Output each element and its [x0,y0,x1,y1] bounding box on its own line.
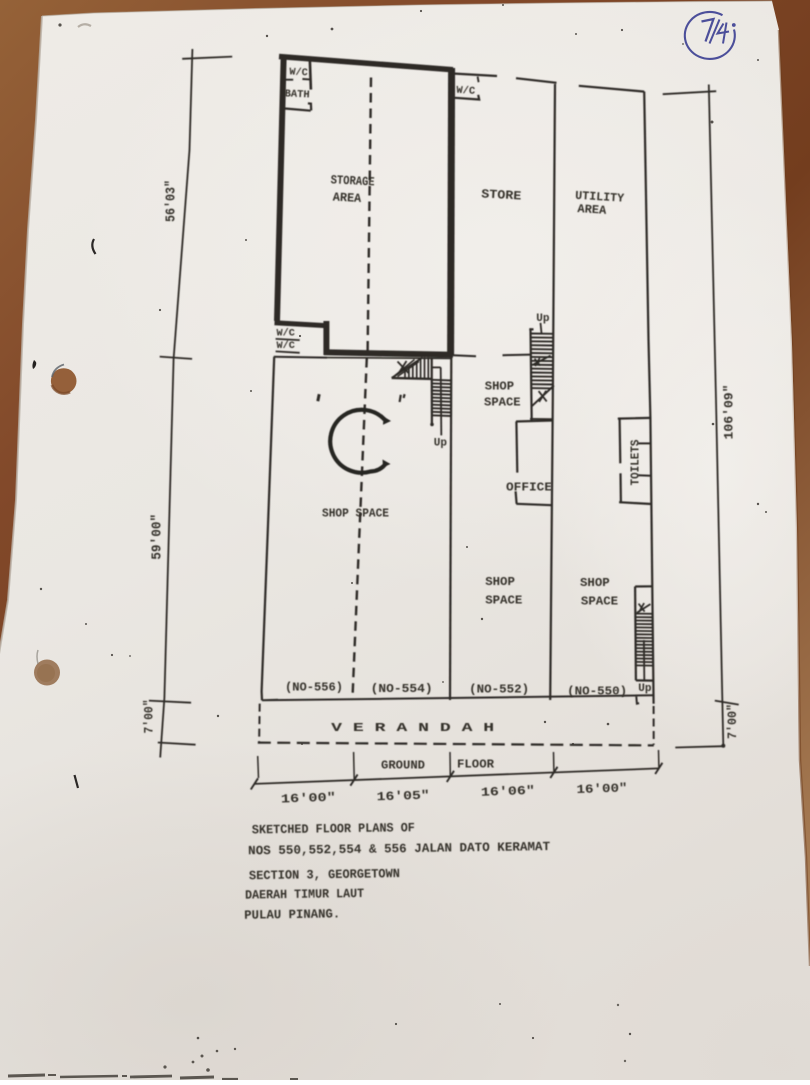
svg-text:OFFICE: OFFICE [506,481,552,495]
svg-text:59'00": 59'00" [150,514,165,560]
svg-text:(NO-556): (NO-556) [285,680,343,694]
svg-text:BATH: BATH [284,88,310,101]
svg-text:(NO-554): (NO-554) [371,682,433,696]
svg-text:Up: Up [536,313,550,325]
svg-text:TOILETS: TOILETS [630,439,643,485]
svg-text:SECTION 3, GEORGETOWN: SECTION 3, GEORGETOWN [249,867,400,883]
svg-text:W/C: W/C [456,85,475,98]
svg-text:STORAGE: STORAGE [330,173,375,189]
svg-text:(NO-550): (NO-550) [567,684,627,698]
svg-text:SHOP SPACE: SHOP SPACE [322,507,389,521]
svg-text:PULAU PINANG.: PULAU PINANG. [244,907,340,922]
svg-text:SHOP: SHOP [485,575,515,589]
svg-text:W/C: W/C [277,340,295,352]
svg-text:W/C: W/C [289,66,308,79]
svg-text:(NO-552): (NO-552) [469,683,529,697]
svg-text:SPACE: SPACE [485,594,522,608]
svg-text:SHOP: SHOP [485,379,514,393]
svg-text:V E R A N D A H: V E R A N D A H [331,721,494,735]
svg-text:AREA: AREA [577,202,607,218]
svg-text:7'00": 7'00" [142,700,156,734]
svg-text:AREA: AREA [332,191,362,207]
svg-text:Up: Up [434,437,448,449]
svg-text:56'03": 56'03" [165,180,180,222]
svg-text:W/C: W/C [277,327,295,339]
svg-text:106'09": 106'09" [722,385,737,440]
svg-text:SPACE: SPACE [484,395,521,409]
svg-text:16'00": 16'00" [281,791,336,807]
svg-text:SHOP: SHOP [580,576,610,590]
svg-text:DAERAH TIMUR LAUT: DAERAH TIMUR LAUT [245,887,365,903]
svg-text:STORE: STORE [481,187,522,203]
svg-text:GROUND: GROUND [381,759,425,773]
svg-text:16'00": 16'00" [576,781,627,797]
svg-text:16'05": 16'05" [376,788,429,804]
svg-text:16'06": 16'06" [481,784,535,800]
svg-text:Up: Up [638,683,652,695]
svg-text:SPACE: SPACE [581,595,618,609]
svg-text:FLOOR: FLOOR [457,758,495,772]
svg-text:7'00": 7'00" [726,704,740,739]
svg-text:SKETCHED FLOOR PLANS OF: SKETCHED FLOOR PLANS OF [252,821,415,837]
